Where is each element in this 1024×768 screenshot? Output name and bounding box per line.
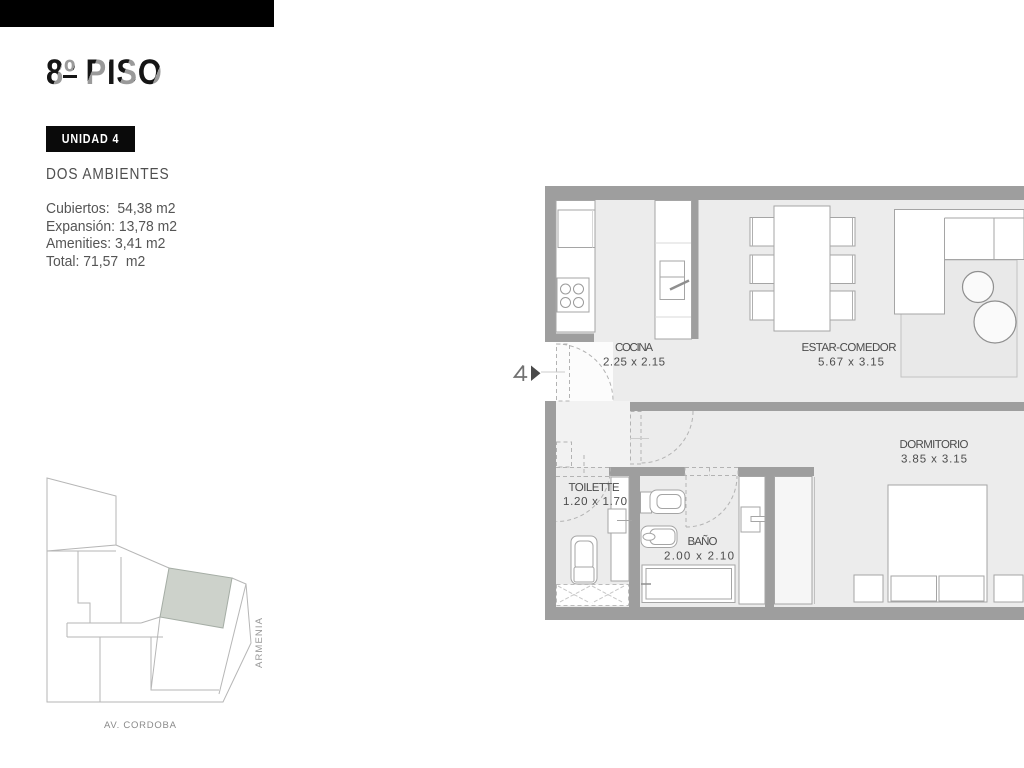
svg-text:TOILETTE: TOILETTE — [569, 482, 620, 494]
svg-text:COCINA: COCINA — [615, 342, 653, 354]
svg-text:2.25 x 2.15: 2.25 x 2.15 — [603, 357, 665, 369]
svg-text:AV. CORDOBA: AV. CORDOBA — [104, 720, 177, 731]
svg-text:ESTAR-COMEDOR: ESTAR-COMEDOR — [802, 342, 897, 354]
svg-text:BAÑO: BAÑO — [688, 534, 718, 548]
svg-text:1.20 x 1.70: 1.20 x 1.70 — [563, 496, 627, 508]
svg-text:2.00 x 2.10: 2.00 x 2.10 — [664, 551, 734, 563]
svg-text:ARMENIA: ARMENIA — [254, 617, 265, 668]
svg-text:5.67 x 3.15: 5.67 x 3.15 — [818, 357, 884, 369]
svg-text:DORMITORIO: DORMITORIO — [900, 439, 969, 451]
svg-text:3.85 x 3.15: 3.85 x 3.15 — [901, 454, 967, 466]
